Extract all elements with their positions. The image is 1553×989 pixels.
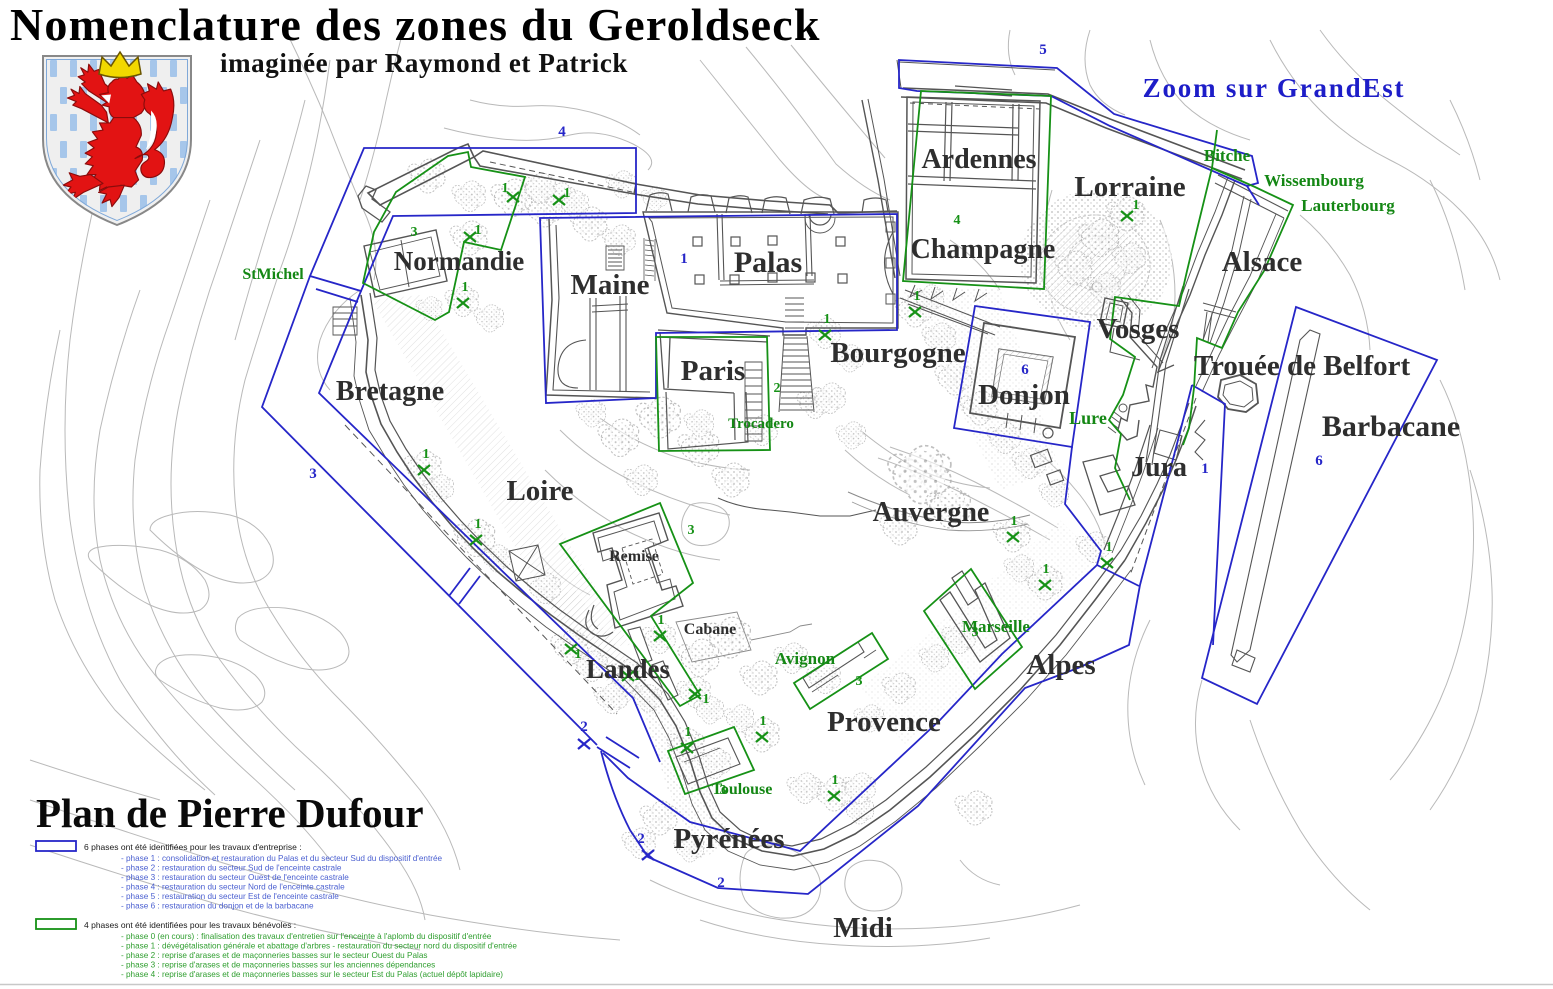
svg-text:4: 4 xyxy=(954,213,961,228)
svg-text:- phase 3 : reprise d'arases e: - phase 3 : reprise d'arases et de maçon… xyxy=(121,961,435,970)
svg-text:3: 3 xyxy=(856,674,863,689)
svg-text:Normandie: Normandie xyxy=(394,246,525,276)
svg-text:- phase 0 (en cours) : finalis: - phase 0 (en cours) : finalisation des … xyxy=(121,932,492,941)
svg-text:Marseille: Marseille xyxy=(962,617,1030,636)
svg-text:1: 1 xyxy=(832,773,839,788)
svg-text:Pyrénées: Pyrénées xyxy=(673,823,784,855)
svg-text:1: 1 xyxy=(502,181,509,196)
svg-text:1: 1 xyxy=(760,714,767,729)
svg-text:Bitche: Bitche xyxy=(1204,146,1251,165)
svg-text:Wissembourg: Wissembourg xyxy=(1264,171,1364,190)
svg-text:1: 1 xyxy=(423,447,430,462)
svg-text:Maine: Maine xyxy=(571,269,650,301)
svg-text:Loire: Loire xyxy=(506,475,573,507)
svg-text:imaginée par Raymond et Patric: imaginée par Raymond et Patrick xyxy=(220,48,628,78)
svg-text:1: 1 xyxy=(703,692,710,707)
svg-text:Landes: Landes xyxy=(586,654,670,684)
svg-text:1: 1 xyxy=(475,517,482,532)
svg-text:1: 1 xyxy=(475,223,482,238)
svg-text:Palas: Palas xyxy=(734,246,802,279)
svg-text:- phase 4 : restauration du se: - phase 4 : restauration du secteur Nord… xyxy=(121,883,345,892)
svg-text:Jura: Jura xyxy=(1131,452,1187,483)
svg-text:- phase 2 : restauration du se: - phase 2 : restauration du secteur Sud … xyxy=(121,864,342,873)
svg-text:- phase 3 : restauration du se: - phase 3 : restauration du secteur Oues… xyxy=(121,873,349,882)
svg-text:Remise: Remise xyxy=(609,548,659,565)
svg-text:- phase 2 : reprise d'arases e: - phase 2 : reprise d'arases et de maçon… xyxy=(121,951,427,960)
svg-text:Bourgogne: Bourgogne xyxy=(830,337,965,369)
svg-text:- phase 6 : restauration du do: - phase 6 : restauration du donjon et de… xyxy=(121,902,314,911)
svg-text:1: 1 xyxy=(824,312,831,327)
svg-text:4 phases ont été identifiées p: 4 phases ont été identifiées pour les tr… xyxy=(84,920,296,930)
svg-text:1: 1 xyxy=(658,613,665,628)
svg-text:3: 3 xyxy=(309,466,317,482)
svg-text:Provence: Provence xyxy=(827,706,941,738)
svg-text:Auvergne: Auvergne xyxy=(873,497,990,528)
svg-text:1: 1 xyxy=(685,725,692,740)
svg-text:Avignon: Avignon xyxy=(775,649,836,668)
svg-text:Paris: Paris xyxy=(681,355,745,387)
svg-text:Barbacane: Barbacane xyxy=(1322,410,1460,443)
svg-text:6 phases ont été identifiées p: 6 phases ont été identifiées pour les tr… xyxy=(84,842,302,852)
svg-text:Bretagne: Bretagne xyxy=(336,376,444,407)
svg-text:Ardennes: Ardennes xyxy=(921,144,1036,175)
svg-text:5: 5 xyxy=(1039,42,1047,58)
svg-text:1: 1 xyxy=(1043,562,1050,577)
svg-text:2: 2 xyxy=(774,381,781,396)
svg-text:1: 1 xyxy=(462,280,469,295)
svg-text:Vosges: Vosges xyxy=(1097,313,1180,345)
svg-text:3: 3 xyxy=(411,225,418,240)
svg-text:6: 6 xyxy=(1021,362,1029,378)
svg-text:Lorraine: Lorraine xyxy=(1074,171,1185,203)
svg-text:Lure: Lure xyxy=(1069,408,1107,428)
svg-text:2: 2 xyxy=(637,831,645,847)
svg-text:1: 1 xyxy=(575,647,582,662)
svg-text:- phase 4 : reprise d'arases e: - phase 4 : reprise d'arases et de maçon… xyxy=(121,970,503,979)
svg-text:1: 1 xyxy=(1011,514,1018,529)
svg-text:Midi: Midi xyxy=(833,912,893,944)
svg-text:- phase 1 : consolidation et r: - phase 1 : consolidation et restauratio… xyxy=(121,854,443,863)
svg-text:1: 1 xyxy=(914,289,921,304)
svg-text:- phase 1 : dévégétalisation g: - phase 1 : dévégétalisation générale et… xyxy=(121,942,517,951)
svg-text:4: 4 xyxy=(558,124,566,140)
svg-text:Nomenclature des zones du Gero: Nomenclature des zones du Geroldseck xyxy=(10,0,821,50)
svg-text:Trouée de Belfort: Trouée de Belfort xyxy=(1194,350,1411,382)
svg-text:Zoom sur GrandEst: Zoom sur GrandEst xyxy=(1143,73,1406,103)
svg-text:2: 2 xyxy=(580,719,588,735)
svg-text:StMichel: StMichel xyxy=(242,266,304,283)
svg-text:- phase 5 : restauration du se: - phase 5 : restauration du secteur Est … xyxy=(121,892,339,901)
svg-text:3: 3 xyxy=(688,523,695,538)
svg-text:1: 1 xyxy=(680,251,688,267)
svg-text:Alpes: Alpes xyxy=(1026,649,1095,681)
svg-text:Toulouse: Toulouse xyxy=(712,781,773,798)
svg-text:Cabane: Cabane xyxy=(684,621,736,638)
svg-text:Alsace: Alsace xyxy=(1222,246,1303,278)
svg-text:Lauterbourg: Lauterbourg xyxy=(1301,196,1395,215)
svg-text:2: 2 xyxy=(717,875,725,891)
svg-text:6: 6 xyxy=(1315,453,1323,469)
svg-text:Donjon: Donjon xyxy=(978,379,1070,411)
svg-text:Trocadero: Trocadero xyxy=(728,416,794,432)
svg-text:1: 1 xyxy=(1201,461,1209,477)
svg-text:1: 1 xyxy=(1106,540,1113,555)
svg-text:Plan de Pierre Dufour: Plan de Pierre Dufour xyxy=(36,790,424,836)
svg-text:Champagne: Champagne xyxy=(911,234,1056,265)
svg-text:1: 1 xyxy=(564,186,571,201)
